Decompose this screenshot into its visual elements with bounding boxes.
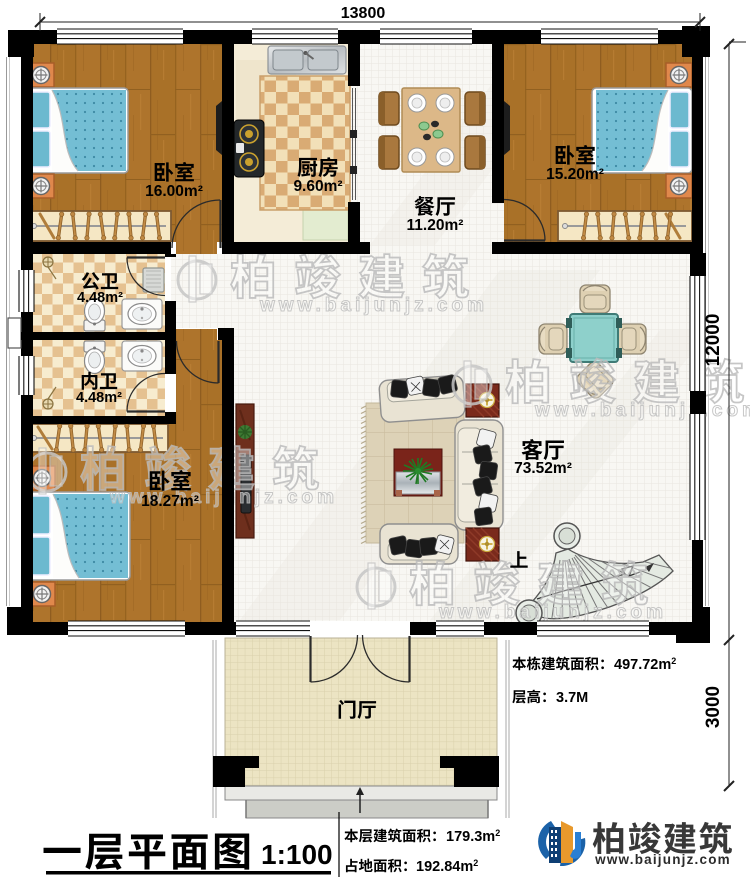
svg-text:16.00m²: 16.00m² <box>145 183 203 200</box>
svg-text:13800: 13800 <box>341 5 386 22</box>
svg-text:497.72m2: 497.72m2 <box>614 656 676 673</box>
svg-text:11.20m²: 11.20m² <box>407 217 464 234</box>
svg-text:192.84m2: 192.84m2 <box>416 858 478 875</box>
svg-text:1:100: 1:100 <box>261 839 333 870</box>
svg-text:15.20m²: 15.20m² <box>546 166 604 183</box>
svg-text:12000: 12000 <box>703 314 724 367</box>
svg-text:3.7M: 3.7M <box>556 690 588 706</box>
svg-text:18.27m²: 18.27m² <box>141 493 199 510</box>
svg-text:179.3m2: 179.3m2 <box>446 828 500 845</box>
svg-text:www.baijunjz.com: www.baijunjz.com <box>594 852 731 867</box>
svg-text:4.48m²: 4.48m² <box>77 290 123 306</box>
svg-text:73.52m²: 73.52m² <box>514 460 572 477</box>
svg-text:3000: 3000 <box>703 686 724 728</box>
svg-text:4.48m²: 4.48m² <box>76 390 122 406</box>
svg-text:9.60m²: 9.60m² <box>293 178 342 195</box>
